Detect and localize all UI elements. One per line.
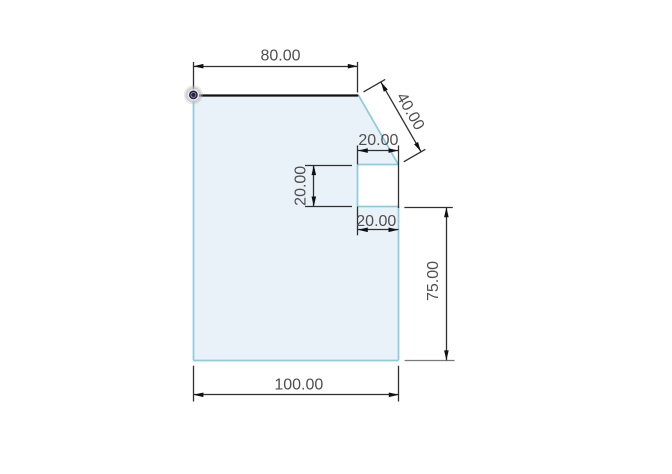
- svg-text:20.00: 20.00: [293, 166, 310, 206]
- svg-text:20.00: 20.00: [356, 213, 396, 230]
- svg-text:100.00: 100.00: [274, 376, 323, 393]
- svg-text:20.00: 20.00: [358, 132, 398, 149]
- svg-text:80.00: 80.00: [260, 48, 300, 65]
- svg-text:75.00: 75.00: [425, 261, 442, 301]
